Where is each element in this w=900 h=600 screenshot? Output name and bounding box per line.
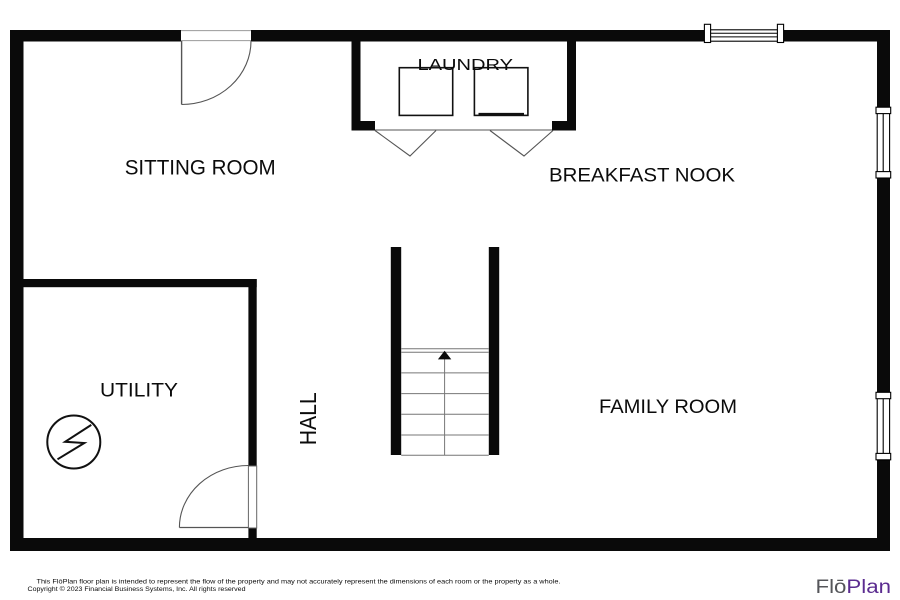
svg-text:UTILITY: UTILITY: [100, 381, 178, 402]
svg-text:SITTING ROOM: SITTING ROOM: [125, 155, 276, 179]
svg-text:This FlōPlan floor plan is int: This FlōPlan floor plan is intended to r…: [37, 578, 561, 585]
svg-text:FlōPlan: FlōPlan: [816, 577, 892, 598]
svg-text:HALL: HALL: [295, 392, 321, 445]
svg-text:LAUNDRY: LAUNDRY: [418, 57, 514, 74]
svg-text:Copyright © 2023 Financial Bus: Copyright © 2023 Financial Business Syst…: [28, 585, 246, 593]
svg-text:FAMILY ROOM: FAMILY ROOM: [599, 397, 737, 418]
svg-text:BREAKFAST NOOK: BREAKFAST NOOK: [549, 166, 735, 187]
